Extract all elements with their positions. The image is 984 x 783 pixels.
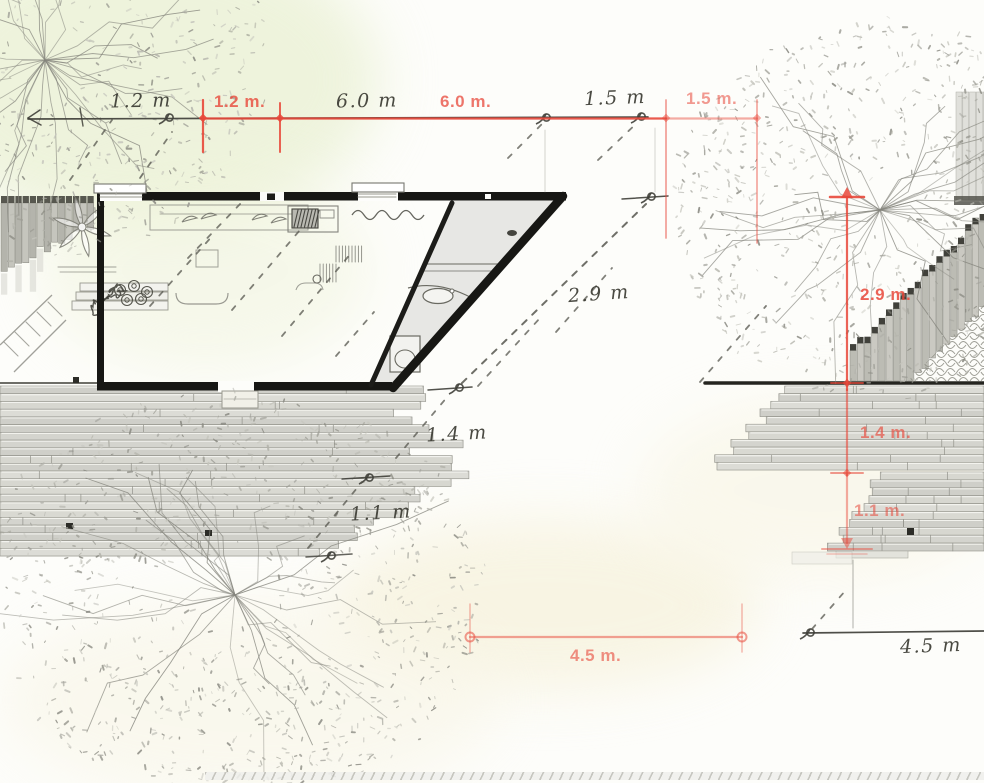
dimension-overlay: [199, 100, 872, 652]
floorplan-document: 1.2 m 6.0 m 1.5 m 2.9 m 1.4 m 1.1 m 4.5 …: [0, 0, 984, 783]
perforation-strip: [205, 772, 984, 780]
floorplan-canvas: [0, 0, 984, 783]
right-deck-steps: [792, 472, 984, 564]
right-plank-screen: [850, 92, 984, 381]
right-deck: [705, 383, 984, 470]
